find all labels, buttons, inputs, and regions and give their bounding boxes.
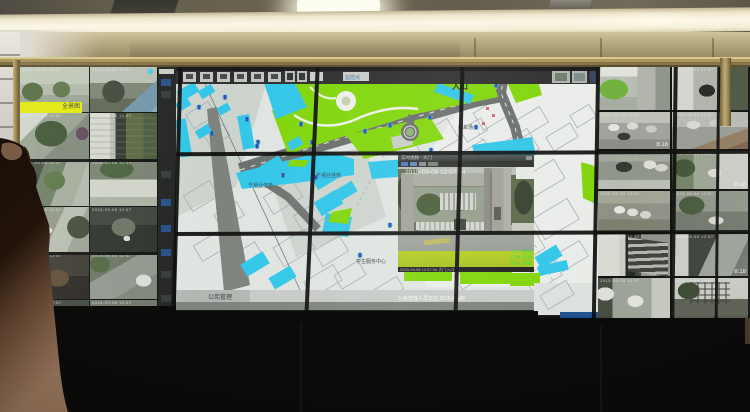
svg-text:千禧业佳苑: 千禧业佳苑 (316, 172, 341, 179)
svg-text:监控点: 监控点 (345, 74, 360, 81)
svg-text:千禧业佳苑: 千禧业佳苑 (248, 182, 273, 189)
svg-text:学生服务中心: 学生服务中心 (356, 258, 386, 265)
svg-text:公宪管理: 公宪管理 (208, 293, 232, 301)
